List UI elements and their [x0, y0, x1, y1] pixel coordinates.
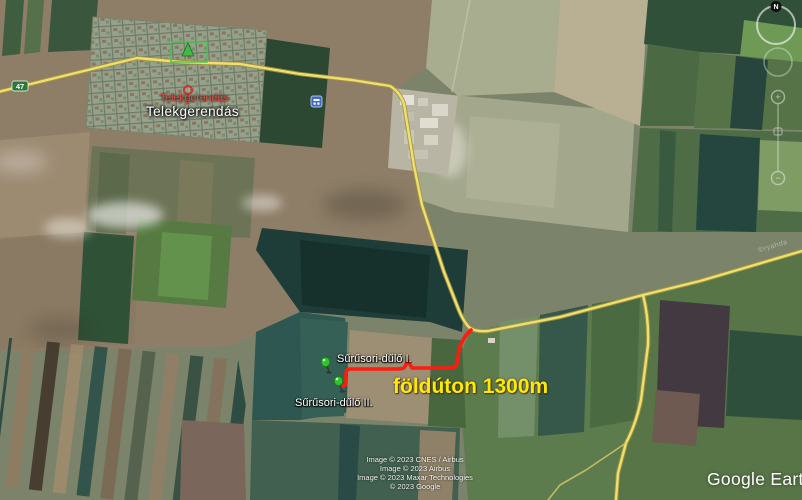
attribution: Image © 2023 CNES / Airbus Image © 2023 …	[300, 455, 530, 491]
attribution-line: Image © 2023 Airbus	[300, 464, 530, 473]
town-label-small: Telekgerendás	[160, 92, 228, 104]
town-area	[86, 17, 267, 143]
route-annotation: földúton 1300m	[393, 375, 548, 399]
svg-text:N: N	[773, 4, 778, 11]
plus-icon[interactable]: +	[775, 92, 780, 102]
town-label-large: Telekgerendás	[146, 104, 239, 119]
map-canvas[interactable]: 47 N + −	[0, 0, 802, 500]
attribution-line: Image © 2023 CNES / Airbus	[300, 455, 530, 464]
google-earth-viewport[interactable]: 47 N + −	[0, 0, 802, 500]
poi-blue-icon[interactable]	[311, 96, 322, 107]
pin-label-2[interactable]: Sűrűsori-dűlő II.	[295, 397, 373, 409]
google-earth-logo: Google Earth	[707, 469, 802, 490]
attribution-line: Image © 2023 Maxar Technologies	[300, 473, 530, 482]
pin-label-1[interactable]: Sűrűsori-dűlő I.	[337, 353, 412, 365]
svg-text:47: 47	[16, 82, 24, 91]
minus-icon[interactable]: −	[775, 173, 780, 183]
road-shield-47: 47	[12, 81, 28, 91]
attribution-line: © 2023 Google	[300, 482, 530, 491]
